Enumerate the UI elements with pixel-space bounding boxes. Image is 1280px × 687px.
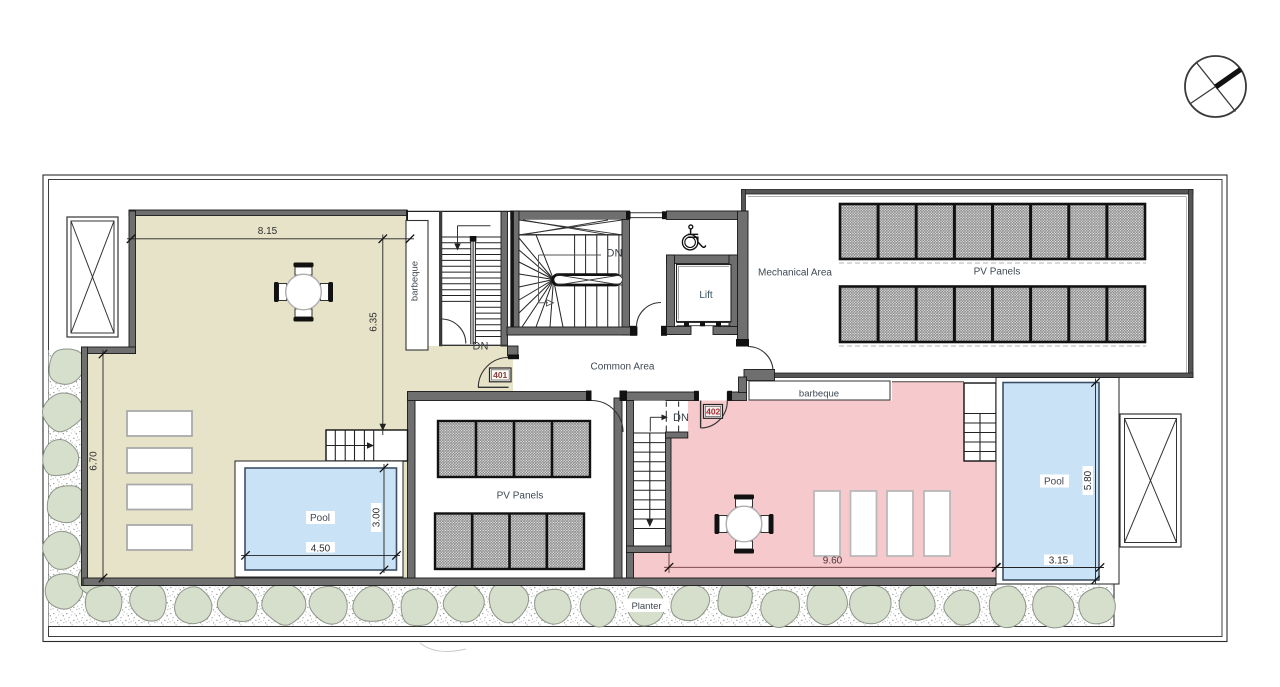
svg-text:DN: DN	[673, 412, 689, 424]
svg-text:6.70: 6.70	[89, 451, 100, 471]
svg-text:DN: DN	[473, 341, 489, 353]
svg-text:401: 401	[493, 370, 507, 380]
svg-text:Common Area: Common Area	[591, 362, 655, 373]
svg-text:barbeque: barbeque	[410, 261, 421, 301]
svg-text:6.35: 6.35	[369, 312, 380, 332]
svg-text:Mechanical Area: Mechanical Area	[758, 268, 832, 279]
svg-text:3.00: 3.00	[372, 507, 383, 527]
svg-text:DN: DN	[607, 248, 623, 260]
svg-text:barbeque: barbeque	[799, 389, 839, 400]
svg-text:3.15: 3.15	[1049, 556, 1069, 567]
svg-text:PV Panels: PV Panels	[497, 491, 544, 502]
svg-text:402: 402	[706, 407, 720, 417]
svg-text:Pool: Pool	[1044, 477, 1064, 488]
svg-text:Planter: Planter	[631, 601, 661, 612]
svg-text:Pool: Pool	[310, 513, 330, 524]
svg-text:Lift: Lift	[699, 290, 713, 301]
svg-text:9.60: 9.60	[823, 556, 843, 567]
svg-text:4.50: 4.50	[311, 544, 331, 555]
svg-text:5.80: 5.80	[1083, 470, 1094, 490]
svg-text:8.15: 8.15	[258, 226, 278, 237]
svg-text:PV Panels: PV Panels	[974, 267, 1021, 278]
